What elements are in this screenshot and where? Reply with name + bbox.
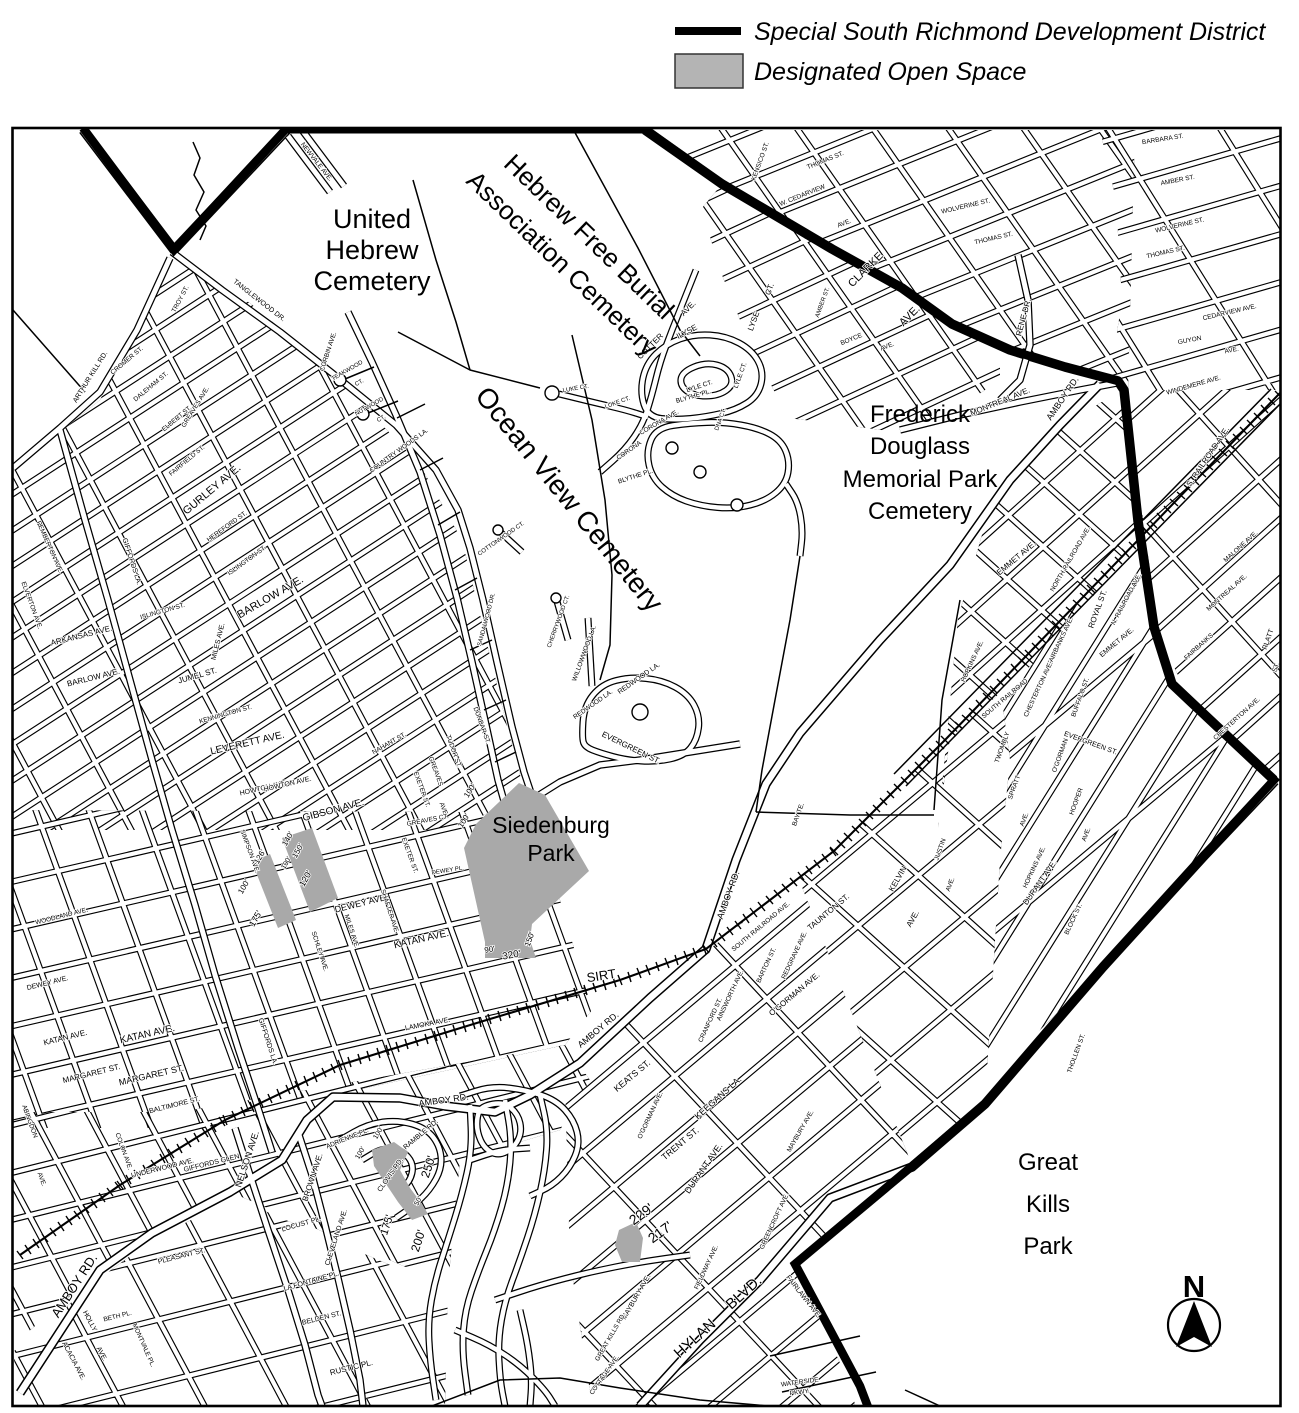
svg-text:Douglass: Douglass: [870, 433, 970, 460]
svg-text:Kills: Kills: [1026, 1191, 1070, 1218]
svg-text:United: United: [333, 204, 411, 234]
svg-text:Special South Richmond Develop: Special South Richmond Development Distr…: [754, 18, 1266, 46]
svg-text:Hebrew: Hebrew: [325, 235, 419, 265]
svg-text:Park: Park: [1023, 1233, 1073, 1260]
svg-text:Memorial Park: Memorial Park: [843, 466, 999, 493]
svg-text:Park: Park: [527, 840, 575, 866]
svg-text:Siedenburg: Siedenburg: [492, 812, 610, 838]
svg-text:Designated Open Space: Designated Open Space: [754, 58, 1026, 86]
svg-text:Cemetery: Cemetery: [868, 498, 972, 525]
svg-text:Frederick: Frederick: [870, 401, 971, 428]
svg-text:Great: Great: [1018, 1149, 1078, 1176]
svg-text:90': 90': [484, 944, 496, 955]
svg-text:Cemetery: Cemetery: [313, 266, 431, 296]
